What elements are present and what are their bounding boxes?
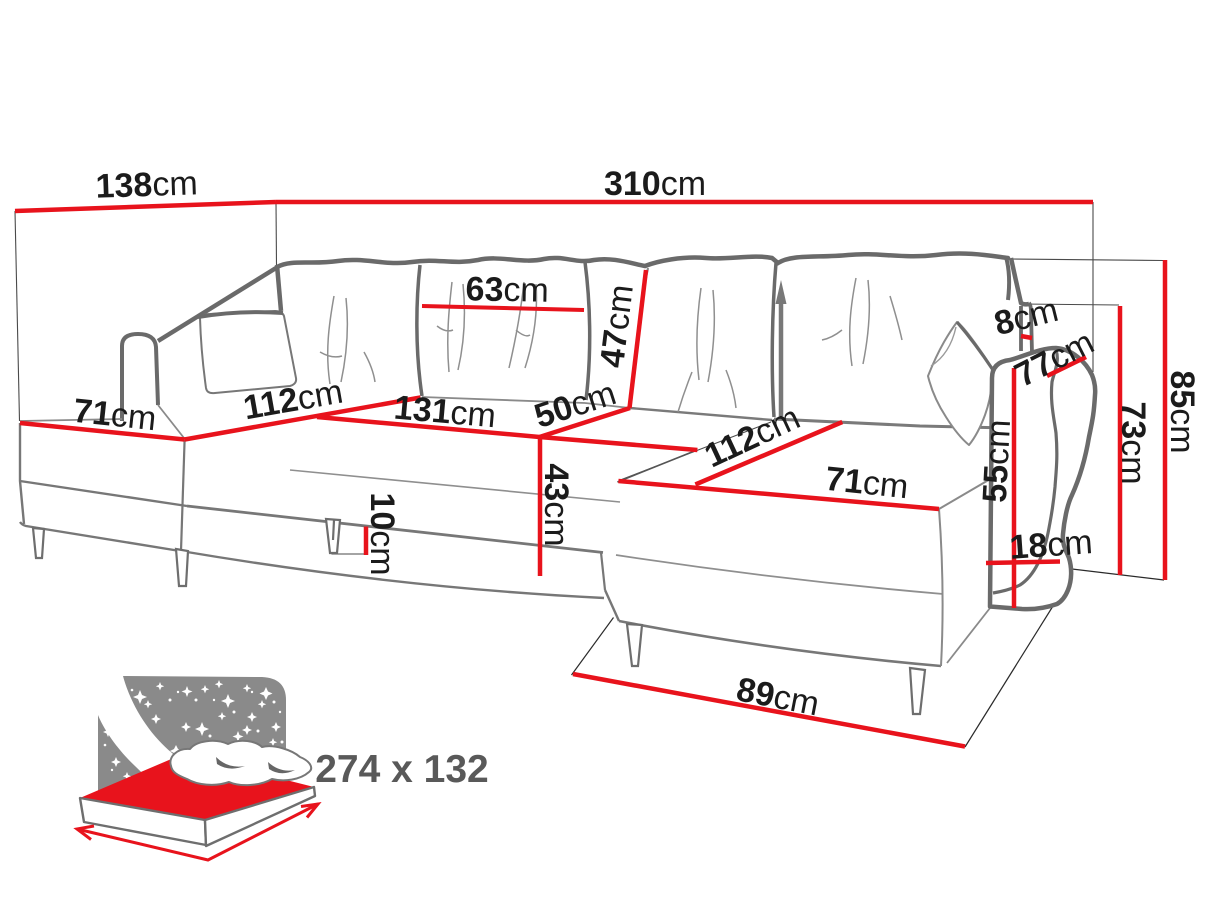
svg-text:274 x 132: 274 x 132 — [315, 748, 489, 791]
svg-text:85cm: 85cm — [1163, 370, 1201, 453]
svg-text:55cm: 55cm — [976, 419, 1018, 504]
svg-text:10cm: 10cm — [363, 492, 401, 575]
svg-text:73cm: 73cm — [1114, 401, 1152, 484]
svg-text:18cm: 18cm — [1008, 523, 1094, 567]
svg-text:43cm: 43cm — [537, 463, 575, 546]
svg-text:138cm: 138cm — [95, 164, 198, 206]
svg-text:310cm: 310cm — [604, 165, 706, 203]
svg-text:63cm: 63cm — [465, 270, 549, 309]
